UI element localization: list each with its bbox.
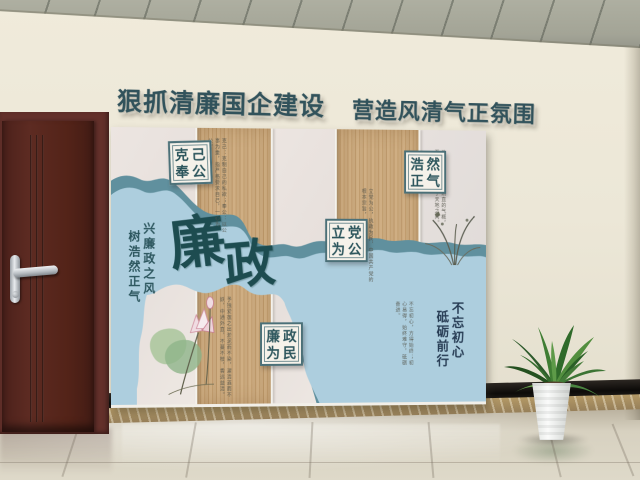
badge-char: 奉 bbox=[174, 163, 191, 180]
culture-wall-board: 克 己 奉 公 浩 然 正 气 立 党 为 公 廉 政 为 民 廉 政 兴廉政之… bbox=[111, 127, 486, 408]
badge-keji-fenggong: 克 己 奉 公 bbox=[168, 140, 213, 185]
door-lock-icon bbox=[12, 291, 19, 298]
badge-char: 党 bbox=[346, 224, 362, 241]
slogan-title-right: 营造风清气正氛围 bbox=[352, 93, 537, 129]
badge-lianzheng-weimin: 廉 政 为 民 bbox=[260, 322, 303, 366]
left-slogan-col2: 树浩然正气 bbox=[126, 230, 143, 305]
door-groove bbox=[30, 135, 32, 422]
badge-char: 气 bbox=[425, 172, 441, 189]
door-groove bbox=[42, 135, 44, 422]
hallway-photo: 狠抓清廉国企建设 营造风清气正氛围 bbox=[0, 0, 640, 480]
right-slogan-col2: 砥砺前行 bbox=[432, 310, 450, 369]
slogan-title-left: 狠抓清廉国企建设 bbox=[117, 82, 326, 124]
badge-haoran-zhengqi: 浩 然 正 气 bbox=[404, 150, 446, 193]
badge-char: 公 bbox=[190, 162, 207, 179]
badge-char: 民 bbox=[282, 344, 299, 361]
badge-char: 公 bbox=[346, 240, 362, 257]
calligraphy-zheng: 政 bbox=[221, 220, 278, 298]
note-lotus-panel: 予独爱莲之出淤泥而不染，濯清涟而不妖，中通外直，不蔓不枝，香远益清。 bbox=[218, 297, 232, 400]
tile-grout-line-horizontal bbox=[0, 462, 640, 463]
left-slogan-col1: 兴廉政之风 bbox=[141, 222, 158, 297]
badge-char: 为 bbox=[265, 344, 282, 361]
door-slab bbox=[2, 121, 94, 432]
badge-char: 立 bbox=[330, 224, 346, 241]
door bbox=[0, 112, 109, 434]
badge-char: 正 bbox=[409, 172, 425, 189]
wall-slogan-title: 狠抓清廉国企建设 营造风清气正氛围 bbox=[117, 82, 537, 129]
door-groove bbox=[36, 135, 38, 422]
badge-char: 为 bbox=[330, 240, 346, 257]
note-chuxin: 不忘初心，方得始终；初心易得，始终难守，砥砺奋进。 bbox=[394, 301, 414, 368]
badge-lidang-weigong: 立 党 为 公 bbox=[325, 219, 367, 262]
lotus-painting bbox=[150, 297, 214, 395]
